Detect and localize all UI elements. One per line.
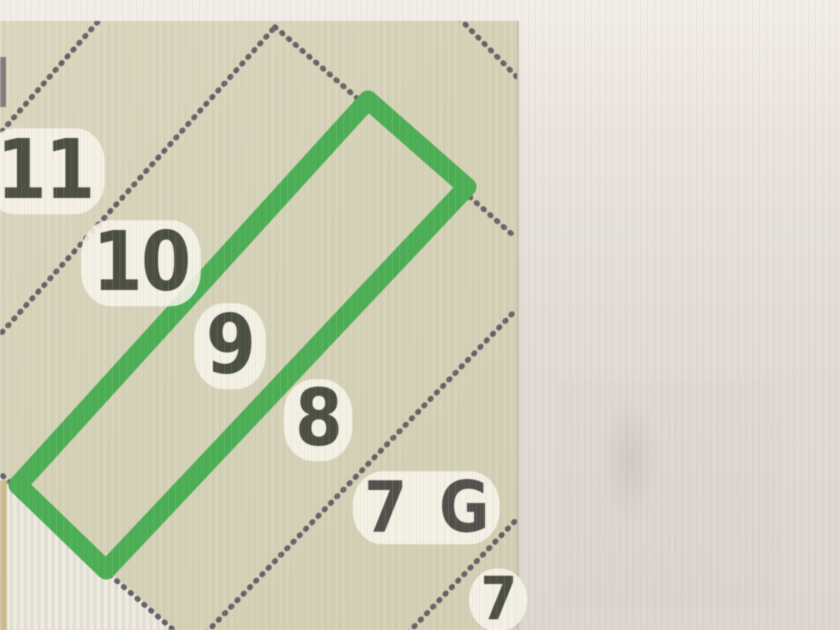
- boundary-line-top-left: [0, 21, 102, 138]
- cadastral-map: 11 10 9 8 7 G 7: [0, 21, 519, 630]
- cutoff-feature-left-edge: [0, 57, 6, 107]
- sheet-edge-tan-sliver: [0, 480, 7, 630]
- lot-label-8: 8: [284, 379, 353, 461]
- photo-of-parcel-map: 11 10 9 8 7 G 7: [0, 0, 840, 630]
- lot-label-9: 9: [194, 303, 265, 389]
- photo-smudge: [560, 380, 780, 610]
- lot-label-7g: 7 G: [353, 471, 500, 544]
- lot-label-10: 10: [81, 220, 201, 306]
- block-edge-north-b: [463, 191, 514, 236]
- lot-label-11: 11: [0, 128, 105, 214]
- lot-label-7: 7: [469, 568, 527, 630]
- boundary-line-top-right: [459, 21, 517, 78]
